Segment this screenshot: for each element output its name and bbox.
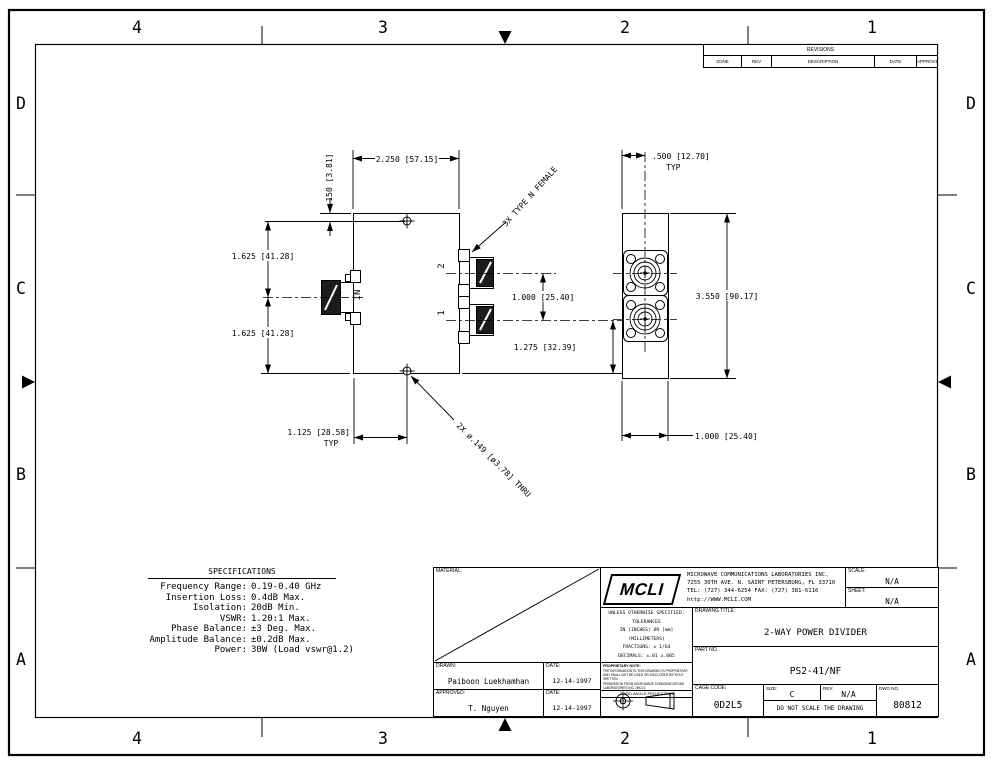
- approved-date-label: DATE:: [546, 691, 560, 696]
- tolerances-line-1: UNLESS OTHERWISE SPECIFIED:: [601, 610, 692, 619]
- revisions-col-rev: REV: [741, 56, 771, 68]
- proprietary-box: PROPRIETARY NOTE: THE INFORMATION IN THI…: [600, 662, 693, 691]
- engineering-drawing-page: { "page": {"background": "#ffffff", "ink…: [0, 0, 993, 765]
- spec-value: 30W (Load vswr@1.2): [247, 645, 354, 656]
- scale-box: SCALE: N/A: [845, 567, 939, 588]
- tolerances-line-2: TOLERANCES: [601, 619, 692, 628]
- revisions-col-zone: ZONE: [704, 56, 741, 68]
- spec-value: 0.19-0.40 GHz: [247, 582, 321, 593]
- revisions-title: REVISIONS: [704, 45, 937, 56]
- company-box: MCLI MICROWAVE COMMUNICATIONS LABORATORI…: [600, 567, 846, 608]
- dim-top-hole-offset-text: .150 [3.81]: [325, 154, 334, 207]
- dim-side-center-offset-text: .500 [12.70]: [652, 152, 710, 161]
- note-holes-leader: 2X ø.149 [ø3.78] THRU: [411, 376, 533, 499]
- tolerances-line-3: IN (INCHES) OR [mm] (MILLIMETERS): [601, 627, 692, 644]
- drawn-label: DRAWN:: [436, 664, 456, 669]
- approved-box: APPROVED: T. Nguyen: [433, 689, 544, 717]
- dim-port-spacing-text: 1.000 [25.40]: [512, 293, 575, 302]
- zone-bottom-4: 4: [132, 729, 142, 748]
- zone-left-a: A: [16, 650, 26, 669]
- drawn-date-box: DATE: 12-14-1997: [543, 662, 601, 690]
- part-no: PS2-41/NF: [693, 647, 938, 685]
- spec-label: Isolation:: [148, 603, 247, 614]
- spec-value: ±0.2dB Max.: [247, 635, 311, 646]
- revisions-col-date: DATE: [874, 56, 916, 68]
- zone-left-c: C: [16, 279, 26, 298]
- dim-side-center-offset-typ: TYP: [666, 163, 681, 172]
- specifications-rule: [148, 578, 336, 579]
- dim-lower-half: 1.625 [41.28]: [231, 298, 297, 374]
- dim-side-width: 1.000 [25.40]: [622, 432, 758, 441]
- spec-row-frequency: Frequency Range:0.19-0.40 GHz: [148, 582, 336, 593]
- dim-side-center-offset: .500 [12.70] TYP: [622, 152, 710, 172]
- zone-right-b: B: [966, 465, 976, 484]
- zone-bottom-2: 2: [620, 729, 630, 748]
- spec-label: Phase Balance:: [148, 624, 247, 635]
- front-view: 2.250 [57.15] .150 [3.81] 1.625 [41.28] …: [231, 150, 625, 499]
- specifications-title: SPECIFICATIONS: [148, 567, 336, 576]
- spec-row-vswr: VSWR:1.20:1 Max.: [148, 614, 336, 625]
- center-mark-bottom-icon: [499, 718, 512, 731]
- approved-label: APPROVED:: [436, 691, 465, 696]
- spec-row-power: Power:30W (Load vswr@1.2): [148, 645, 336, 656]
- dim-port1-to-edge: 1.275 [32.39]: [514, 321, 613, 374]
- spec-row-insertion-loss: Insertion Loss:0.4dB Max.: [148, 593, 336, 604]
- no-scale-box: DO NOT SCALE THE DRAWING: [763, 700, 877, 717]
- third-angle-projection-icon: [601, 691, 692, 711]
- spec-label: Amplitude Balance:: [148, 635, 247, 646]
- spec-label: Frequency Range:: [148, 582, 247, 593]
- output-connector-2: [459, 250, 494, 297]
- zone-bottom-1: 1: [867, 729, 877, 748]
- center-mark-right-icon: [938, 376, 951, 389]
- tolerances-line-4: FRACTIONS: ± 1/64: [601, 644, 692, 653]
- size-label: SIZE:: [766, 686, 777, 691]
- dim-hole-x-offset-typ: TYP: [324, 439, 339, 448]
- zone-top-2: 2: [620, 18, 630, 37]
- sheet-box: SHEET: N/A: [845, 587, 939, 608]
- tolerances-line-5: DECIMALS: ±.01 ±.005: [601, 653, 692, 662]
- front-view-body: [354, 214, 460, 374]
- dim-hole-x-offset: 1.125 [28.58] TYP: [287, 428, 407, 448]
- mcli-logo-text: MCLI: [618, 580, 667, 600]
- center-mark-left-icon: [22, 376, 35, 389]
- dim-port1-to-edge-text: 1.275 [32.39]: [514, 343, 577, 352]
- drawn-date-label: DATE:: [546, 664, 560, 669]
- zone-left-d: D: [16, 94, 26, 113]
- spec-row-amplitude-balance: Amplitude Balance:±0.2dB Max.: [148, 635, 336, 646]
- cage-code-box: CAGE CODE: 0D2L5: [692, 684, 764, 717]
- rev-label: REV:: [823, 686, 833, 691]
- company-line-4: http://WWW.MCLI.COM: [687, 596, 835, 604]
- part-no-label: PART NO.: [695, 648, 718, 653]
- dim-front-width-text: 2.250 [57.15]: [376, 155, 439, 164]
- drawing-title-box: DRAWING TITLE: 2-WAY POWER DIVIDER: [692, 607, 939, 647]
- dim-side-height: 3.550 [90.17]: [694, 214, 761, 379]
- spec-label: Power:: [148, 645, 247, 656]
- proprietary-line-2: AND SHALL NOT BE USED OR DISCLOSED WITHO…: [603, 673, 690, 682]
- mcli-logo: MCLI: [603, 574, 681, 605]
- material-diagonal-line: [434, 568, 600, 662]
- scale-label: SCALE:: [848, 569, 866, 574]
- note-connectors-text: 3X TYPE N FEMALE: [501, 165, 559, 228]
- dim-port-spacing: 1.000 [25.40]: [511, 274, 576, 321]
- label-port-1: 1: [437, 310, 447, 315]
- sheet-label: SHEET:: [848, 589, 866, 594]
- spec-value: 0.4dB Max.: [247, 593, 305, 604]
- drawing-title-label: DRAWING TITLE:: [695, 609, 735, 614]
- spec-row-isolation: Isolation:20dB Min.: [148, 603, 336, 614]
- zone-top-3: 3: [378, 18, 388, 37]
- dim-top-hole-offset: .150 [3.81]: [325, 154, 334, 236]
- center-mark-top-icon: [499, 31, 512, 44]
- dim-upper-half-text: 1.625 [41.28]: [232, 252, 295, 261]
- material-box: MATERIAL:: [433, 567, 601, 663]
- output-connector-1: [459, 297, 494, 344]
- zone-top-4: 4: [132, 18, 142, 37]
- zone-bottom-3: 3: [378, 729, 388, 748]
- dim-hole-x-offset-text: 1.125 [28.58]: [287, 428, 350, 437]
- cage-code-label: CAGE CODE:: [695, 686, 726, 691]
- size-box: SIZE: C: [763, 684, 821, 701]
- spec-label: Insertion Loss:: [148, 593, 247, 604]
- company-line-1: MICROWAVE COMMUNICATIONS LABORATORIES IN…: [687, 571, 835, 579]
- side-view: .500 [12.70] TYP 3.550 [90.17] 1.000 [25…: [613, 150, 761, 441]
- zone-right-a: A: [966, 650, 976, 669]
- company-line-2: 7255 30TH AVE. N. SAINT PETERSBURG, FL 3…: [687, 579, 835, 587]
- zone-top-1: 1: [867, 18, 877, 37]
- label-port-in: IN: [353, 290, 363, 301]
- part-no-box: PART NO. PS2-41/NF: [692, 646, 939, 685]
- revisions-col-approved: APPROVED: [916, 56, 937, 68]
- dim-front-width: 2.250 [57.15]: [353, 152, 459, 164]
- revisions-table: REVISIONS ZONE REV DESCRIPTION DATE APPR…: [703, 44, 938, 68]
- dwg-no-box: DWG NO. 80812: [876, 684, 939, 717]
- zone-right-c: C: [966, 279, 976, 298]
- zone-left-b: B: [16, 465, 26, 484]
- specifications-block: SPECIFICATIONS Frequency Range:0.19-0.40…: [148, 567, 336, 656]
- label-port-2: 2: [437, 263, 447, 268]
- spec-value: 20dB Min.: [247, 603, 300, 614]
- rev-box: REV: N/A: [820, 684, 877, 701]
- spec-row-phase-balance: Phase Balance:±3 Deg. Max.: [148, 624, 336, 635]
- revisions-col-description: DESCRIPTION: [771, 56, 874, 68]
- dim-lower-half-text: 1.625 [41.28]: [232, 329, 295, 338]
- drawn-box: DRAWN: Paiboon Luekhamhan: [433, 662, 544, 690]
- dim-side-height-text: 3.550 [90.17]: [696, 292, 759, 301]
- dim-side-width-text: 1.000 [25.40]: [695, 432, 758, 441]
- no-scale-note: DO NOT SCALE THE DRAWING: [764, 701, 876, 716]
- dwg-no-label: DWG NO.: [879, 686, 899, 691]
- zone-right-d: D: [966, 94, 976, 113]
- spec-value: ±3 Deg. Max.: [247, 624, 316, 635]
- note-connectors-leader: 3X TYPE N FEMALE: [472, 165, 559, 252]
- approved-date-box: DATE: 12-14-1997: [543, 689, 601, 717]
- company-line-3: TEL: (727) 344-6254 FAX: (727) 381-6116: [687, 587, 835, 595]
- tolerances-box: UNLESS OTHERWISE SPECIFIED: TOLERANCES I…: [600, 607, 693, 663]
- projection-box: THIRD ANGLE PROJECTION: [600, 690, 693, 717]
- note-holes-text: 2X ø.149 [ø3.78] THRU: [455, 421, 533, 499]
- spec-label: VSWR:: [148, 614, 247, 625]
- company-address: MICROWAVE COMMUNICATIONS LABORATORIES IN…: [687, 571, 835, 604]
- dim-upper-half: 1.625 [41.28]: [231, 222, 297, 298]
- spec-value: 1.20:1 Max.: [247, 614, 311, 625]
